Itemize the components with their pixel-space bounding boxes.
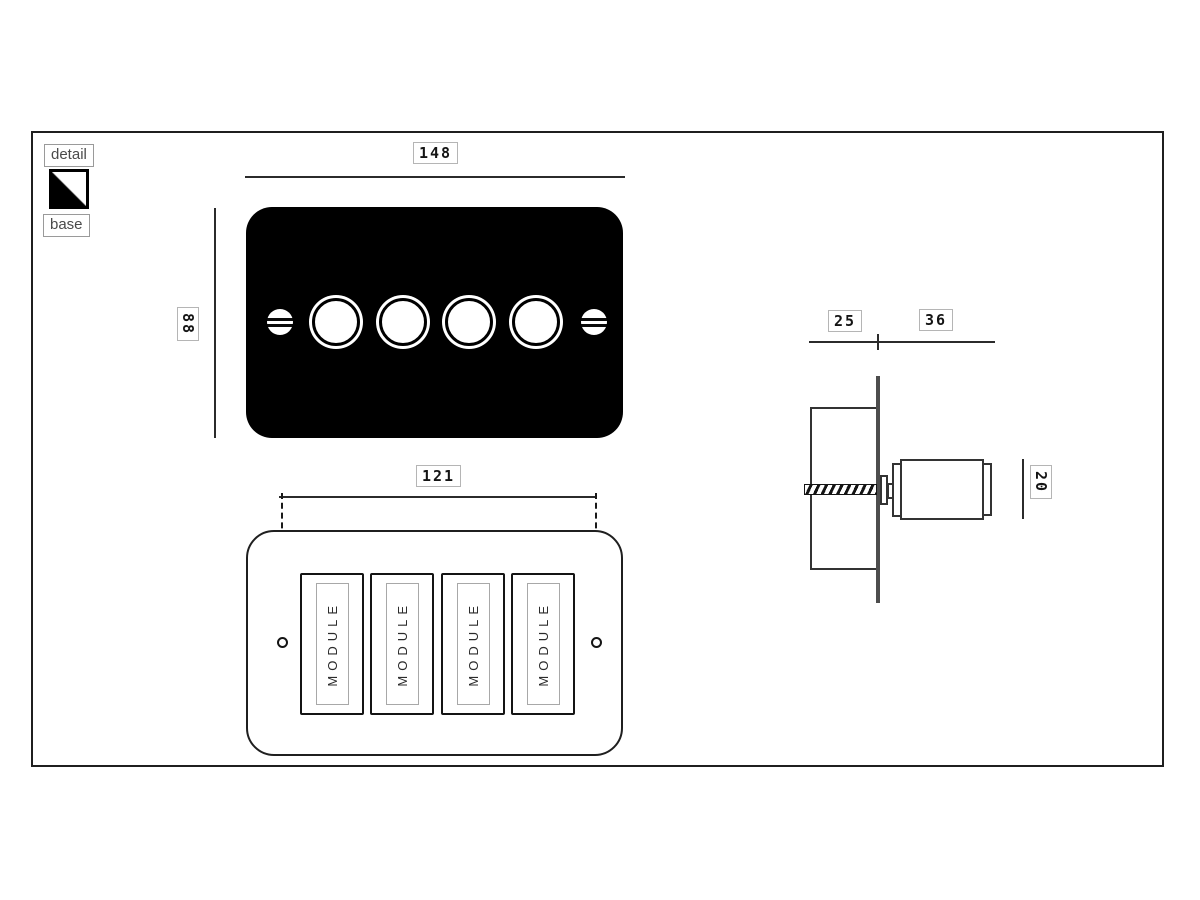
side-front-dimension: 36 [919,309,953,331]
screw-head-left [267,309,293,335]
base-width-dimension: 121 [416,465,461,487]
screw-hole-left [277,637,288,648]
side-knob-cap-right [982,463,992,516]
module-inner-4: MODULE [527,583,560,705]
dimmer-knob-4 [509,295,563,349]
side-depth-dimension-line [809,341,995,343]
front-height-dimension: 88 [177,307,199,341]
module-slot-3: MODULE [441,573,505,715]
base-view-plate: MODULE MODULE MODULE MODULE [246,530,623,756]
legend-base-label: base [43,214,90,237]
front-width-dimension-line [245,176,625,178]
front-width-dimension: 148 [413,142,458,164]
module-inner-1: MODULE [316,583,349,705]
side-knob-body [900,459,984,520]
module-label-2: MODULE [395,601,410,687]
side-behind-dimension: 25 [828,310,862,332]
drawing-border: detail base 148 88 121 MODULE [31,131,1164,767]
module-label-4: MODULE [536,601,551,687]
screw-hole-right [591,637,602,648]
module-slot-4: MODULE [511,573,575,715]
detail-base-swatch-icon [49,169,89,209]
screw-head-right [581,309,607,335]
front-height-dimension-line [214,208,216,438]
module-slot-1: MODULE [300,573,364,715]
side-knob-dimension-line [1022,459,1024,519]
dimmer-knob-3 [442,295,496,349]
module-label-1: MODULE [325,601,340,687]
front-view-plate [246,207,623,438]
base-width-dimension-line [279,496,596,498]
legend-detail-label: detail [44,144,94,167]
module-inner-3: MODULE [457,583,490,705]
spec-drawing-page: detail base 148 88 121 MODULE [0,0,1200,900]
side-threaded-rod [804,484,877,495]
module-slot-2: MODULE [370,573,434,715]
dimmer-knob-2 [376,295,430,349]
side-depth-dimension-tick [877,334,879,350]
side-knob-dimension: 20 [1030,465,1052,499]
module-label-3: MODULE [466,601,481,687]
dimmer-knob-1 [309,295,363,349]
module-inner-2: MODULE [386,583,419,705]
